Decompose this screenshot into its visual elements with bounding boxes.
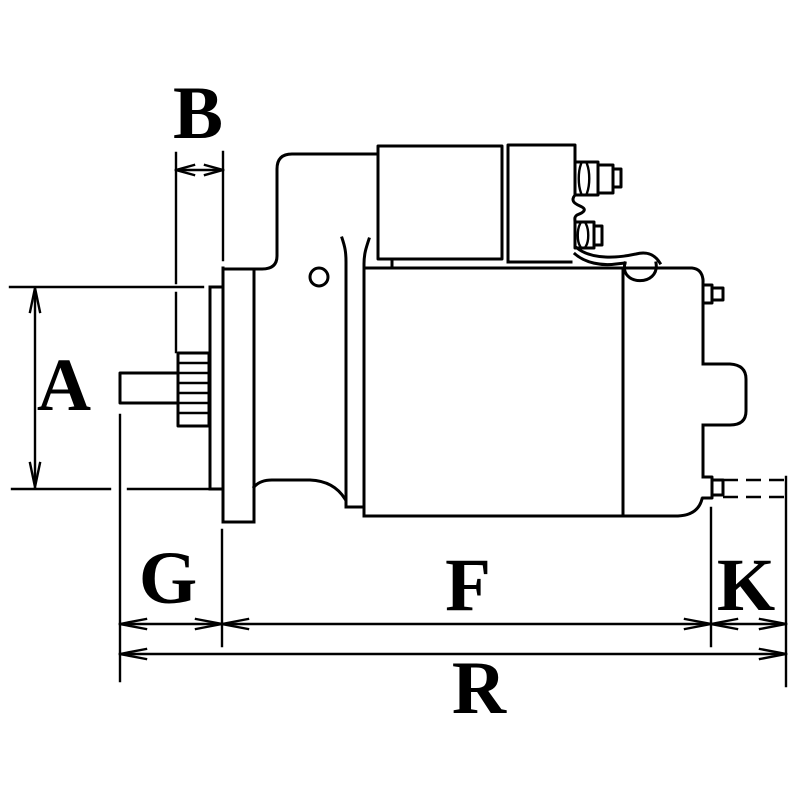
through-bolt-top	[703, 285, 723, 303]
cap-moulding-edge	[573, 195, 584, 222]
housing-neck	[342, 238, 392, 516]
dim-b-extension-lines	[176, 152, 223, 352]
dimension-b: B	[173, 72, 223, 352]
dim-label-r: R	[452, 647, 507, 730]
terminal-tip-top	[613, 169, 621, 187]
dim-label-g: G	[139, 537, 197, 620]
motor-yoke	[364, 268, 703, 516]
bracket-top-profile	[223, 154, 378, 269]
hidden-bolt-lines	[723, 480, 784, 497]
pinion-gear-teeth	[178, 363, 209, 413]
dim-label-a: A	[37, 344, 91, 427]
housing-underside	[254, 480, 345, 499]
terminal-insulator-bottom-detail	[578, 224, 589, 246]
dim-label-f: F	[445, 544, 491, 627]
dim-label-b: B	[173, 72, 223, 155]
terminal-nut-top	[598, 165, 613, 193]
solenoid	[378, 145, 660, 281]
yoke-bottom	[364, 499, 702, 516]
shaft-and-pinion	[120, 353, 209, 426]
starter-motor-diagram: B A G F K R	[0, 0, 800, 800]
solenoid-cap	[508, 145, 575, 262]
terminal-stud-top	[575, 162, 621, 195]
through-bolt-bottom	[703, 477, 723, 498]
output-shaft	[120, 373, 177, 403]
rear-bearing-boss	[703, 364, 746, 425]
dimension-chain-bottom: G F K R	[120, 415, 786, 730]
solenoid-body	[378, 146, 502, 259]
field-strap	[575, 248, 660, 281]
flange-pilot	[210, 287, 223, 489]
commutator-end-bracket	[703, 280, 784, 498]
drawing-canvas: B A G F K R	[0, 0, 800, 800]
terminal-nut-bottom	[594, 226, 602, 245]
drive-end-bracket	[210, 154, 392, 522]
terminal-insulator-top-detail	[579, 164, 590, 193]
terminal-stud-bottom	[575, 222, 602, 248]
mounting-flange	[223, 268, 254, 522]
dim-label-k: K	[717, 544, 775, 627]
housing-hole	[310, 268, 328, 286]
